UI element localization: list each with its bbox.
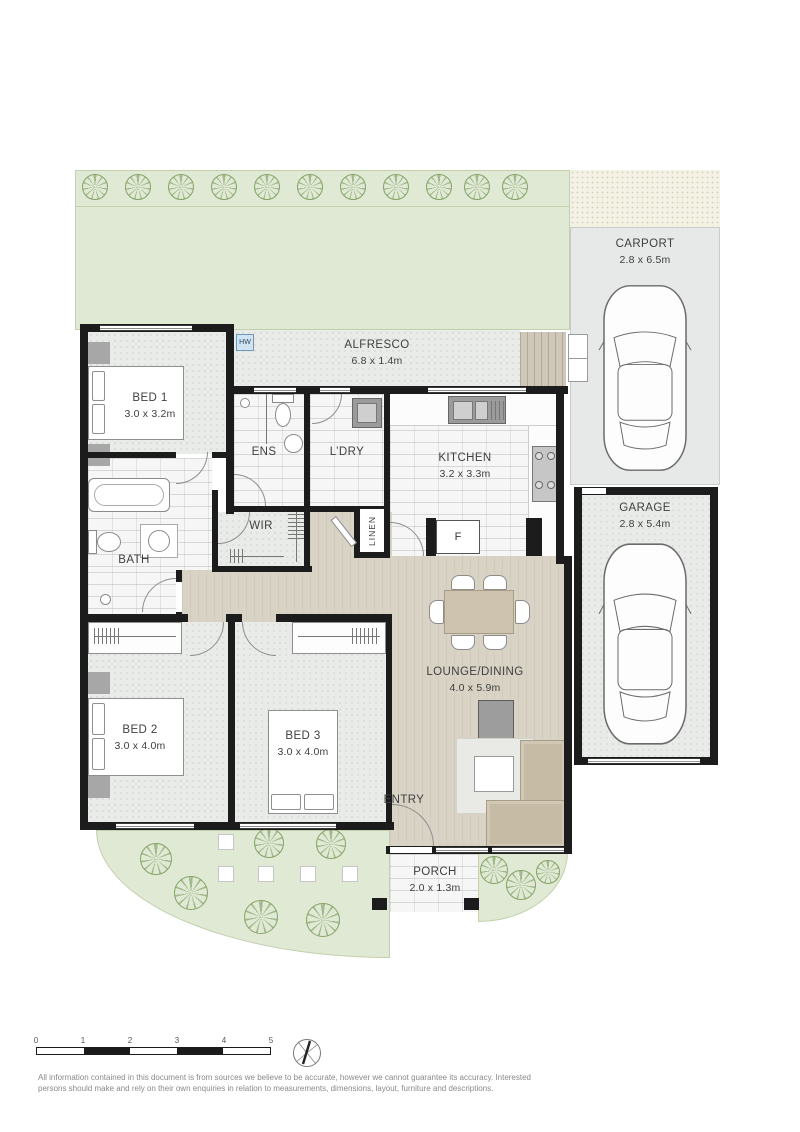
tree-icon — [211, 174, 237, 200]
bath-label: BATH — [99, 552, 169, 568]
window — [116, 823, 194, 829]
entry-label: ENTRY — [368, 792, 440, 808]
wall — [226, 324, 234, 514]
sofa — [486, 800, 566, 848]
window — [240, 823, 336, 829]
toilet-tank — [88, 530, 97, 554]
window — [436, 847, 488, 853]
kitchen-dims: 3.2 x 3.3m — [390, 466, 540, 482]
bath-name: BATH — [99, 552, 169, 568]
porch-name: PORCH — [392, 864, 478, 880]
tree-icon — [168, 174, 194, 200]
garage-label: GARAGE 2.8 x 5.4m — [578, 500, 712, 532]
shower-head-icon — [100, 594, 111, 605]
sliding-door — [428, 387, 526, 393]
bedside-table — [88, 776, 110, 798]
wall — [80, 324, 88, 830]
scale-segment — [223, 1048, 270, 1054]
stepping-stone — [218, 834, 234, 850]
basin-icon — [148, 530, 170, 552]
dining-chair — [483, 575, 507, 590]
lounge-label: LOUNGE/DINING 4.0 x 5.9m — [395, 664, 555, 696]
burner-icon — [547, 481, 555, 489]
garage-dims: 2.8 x 5.4m — [578, 516, 712, 532]
laundry-label: L’DRY — [308, 444, 386, 460]
front-garden-left — [96, 830, 390, 958]
deck — [520, 332, 566, 386]
scale-bar — [36, 1047, 271, 1055]
pillow — [304, 794, 334, 810]
bed3-dims: 3.0 x 4.0m — [248, 744, 358, 760]
bed1-dims: 3.0 x 3.2m — [95, 406, 205, 422]
dining-chair — [515, 600, 530, 624]
scale-tick: 3 — [172, 1036, 182, 1045]
garage-doorway — [582, 488, 606, 494]
robe-rail-line — [94, 636, 176, 637]
stepping-stone — [218, 866, 234, 882]
ens-label: ENS — [232, 444, 296, 460]
bathtub — [88, 478, 170, 512]
entry-name: ENTRY — [368, 792, 440, 808]
driveway — [570, 170, 720, 227]
kitchen-label: KITCHEN 3.2 x 3.3m — [390, 450, 540, 482]
stepping-stone — [342, 866, 358, 882]
tree-icon — [174, 876, 208, 910]
ens-name: ENS — [232, 444, 296, 460]
compass-icon — [290, 1036, 324, 1070]
car-icon — [598, 540, 692, 748]
garage-name: GARAGE — [578, 500, 712, 516]
bedside-table — [88, 672, 110, 694]
wall — [212, 566, 312, 572]
disclaimer-line2: persons should make and rely on their ow… — [38, 1083, 493, 1094]
porch-post — [464, 898, 479, 910]
scale-segment — [84, 1048, 131, 1054]
kitchen-name: KITCHEN — [390, 450, 540, 466]
laundry-tub-basin — [357, 403, 377, 423]
wall — [212, 452, 226, 458]
wall — [80, 614, 188, 622]
linen-label: LINEN — [360, 509, 384, 552]
carport-dims: 2.8 x 6.5m — [570, 252, 720, 268]
scale-segment — [130, 1048, 177, 1054]
alfresco-name: ALFRESCO — [277, 337, 477, 353]
bed1-label: BED 1 3.0 x 3.2m — [95, 390, 205, 422]
wall — [564, 556, 572, 852]
window — [320, 387, 350, 393]
tree-icon — [244, 900, 278, 934]
burner-icon — [535, 481, 543, 489]
hw-label: HW — [239, 339, 251, 346]
window — [100, 325, 192, 331]
laundry-tub — [352, 398, 382, 428]
pillow — [271, 794, 301, 810]
tree-icon — [140, 843, 172, 875]
bedside-table — [88, 342, 110, 364]
floorplan-page: LINEN F HW BED 1 3.0 x 3.2m ALFRESCO 6.8… — [0, 0, 800, 1132]
scale-tick: 2 — [125, 1036, 135, 1045]
carport-name: CARPORT — [570, 236, 720, 252]
wir-label: WIR — [218, 518, 304, 534]
drainer-icon — [491, 401, 504, 420]
bathtub-inner — [94, 484, 164, 506]
tree-icon — [464, 174, 490, 200]
wall — [176, 570, 182, 582]
tree-icon — [426, 174, 452, 200]
wir-name: WIR — [218, 518, 304, 534]
garage-door — [588, 758, 700, 764]
scale-tick: 1 — [78, 1036, 88, 1045]
wall — [526, 518, 542, 556]
tree-icon — [254, 174, 280, 200]
scale-tick: 4 — [219, 1036, 229, 1045]
tree-icon — [316, 829, 346, 859]
porch-dims: 2.0 x 1.3m — [392, 880, 478, 896]
coffee-table — [474, 756, 514, 792]
tree-icon — [536, 860, 560, 884]
stepping-stone — [258, 866, 274, 882]
rear-garden — [75, 170, 570, 330]
dining-chair — [451, 575, 475, 590]
wir-rail-line — [230, 556, 284, 557]
tree-icon — [125, 174, 151, 200]
fridge-space: F — [436, 520, 480, 554]
wall — [354, 552, 390, 558]
dining-table — [444, 590, 514, 634]
tree-icon — [254, 828, 284, 858]
scale-tick: 5 — [266, 1036, 276, 1045]
shower-head-icon — [240, 398, 250, 408]
sink-basin — [475, 401, 488, 420]
wall — [276, 614, 392, 622]
wall — [304, 508, 310, 572]
fridge-label: F — [455, 531, 462, 543]
gate — [568, 334, 588, 382]
bed1-name: BED 1 — [95, 390, 205, 406]
bed3-label: BED 3 3.0 x 4.0m — [248, 728, 358, 760]
dining-chair — [451, 635, 475, 650]
porch-label: PORCH 2.0 x 1.3m — [392, 864, 478, 896]
dining-chair — [483, 635, 507, 650]
scale-tick: 0 — [31, 1036, 41, 1045]
wall — [556, 386, 564, 564]
bed3-name: BED 3 — [248, 728, 358, 744]
bed2-dims: 3.0 x 4.0m — [85, 738, 195, 754]
burner-icon — [547, 452, 555, 460]
toilet-icon — [97, 532, 121, 552]
window — [254, 387, 296, 393]
carport-label: CARPORT 2.8 x 6.5m — [570, 236, 720, 268]
window — [492, 847, 564, 853]
tree-icon — [297, 174, 323, 200]
tree-icon — [480, 856, 508, 884]
toilet-icon — [275, 403, 291, 427]
scale-segment — [177, 1048, 224, 1054]
shower-screen — [266, 394, 267, 444]
robe-rail-line — [298, 636, 380, 637]
tree-icon — [502, 174, 528, 200]
tv-unit — [478, 700, 514, 740]
wall — [426, 518, 436, 556]
alfresco-label: ALFRESCO 6.8 x 1.4m — [277, 337, 477, 369]
bed2-label: BED 2 3.0 x 4.0m — [85, 722, 195, 754]
sink-basin — [453, 401, 473, 420]
tree-icon — [82, 174, 108, 200]
wall — [80, 452, 176, 458]
car-icon — [598, 282, 692, 474]
kitchen-sink — [448, 396, 506, 424]
disclaimer-line1: All information contained in this docume… — [38, 1072, 531, 1083]
entry-doorway — [390, 847, 432, 853]
porch-post — [372, 898, 387, 910]
hot-water-unit: HW — [236, 334, 254, 351]
linen-closet: LINEN — [360, 509, 384, 552]
bed2-name: BED 2 — [85, 722, 195, 738]
floor-plan: LINEN F HW BED 1 3.0 x 3.2m ALFRESCO 6.8… — [0, 0, 800, 1132]
tree-icon — [506, 870, 536, 900]
tree-icon — [306, 903, 340, 937]
lounge-name: LOUNGE/DINING — [395, 664, 555, 680]
laundry-name: L’DRY — [308, 444, 386, 460]
toilet-tank — [272, 394, 294, 403]
lounge-dims: 4.0 x 5.9m — [395, 680, 555, 696]
stepping-stone — [300, 866, 316, 882]
alfresco-dims: 6.8 x 1.4m — [277, 353, 477, 369]
scale-segment — [37, 1048, 84, 1054]
tree-icon — [383, 174, 409, 200]
legend: 0 1 2 3 4 5 All information contained in… — [0, 1030, 800, 1130]
wall — [228, 614, 235, 830]
dining-chair — [429, 600, 444, 624]
tree-icon — [340, 174, 366, 200]
